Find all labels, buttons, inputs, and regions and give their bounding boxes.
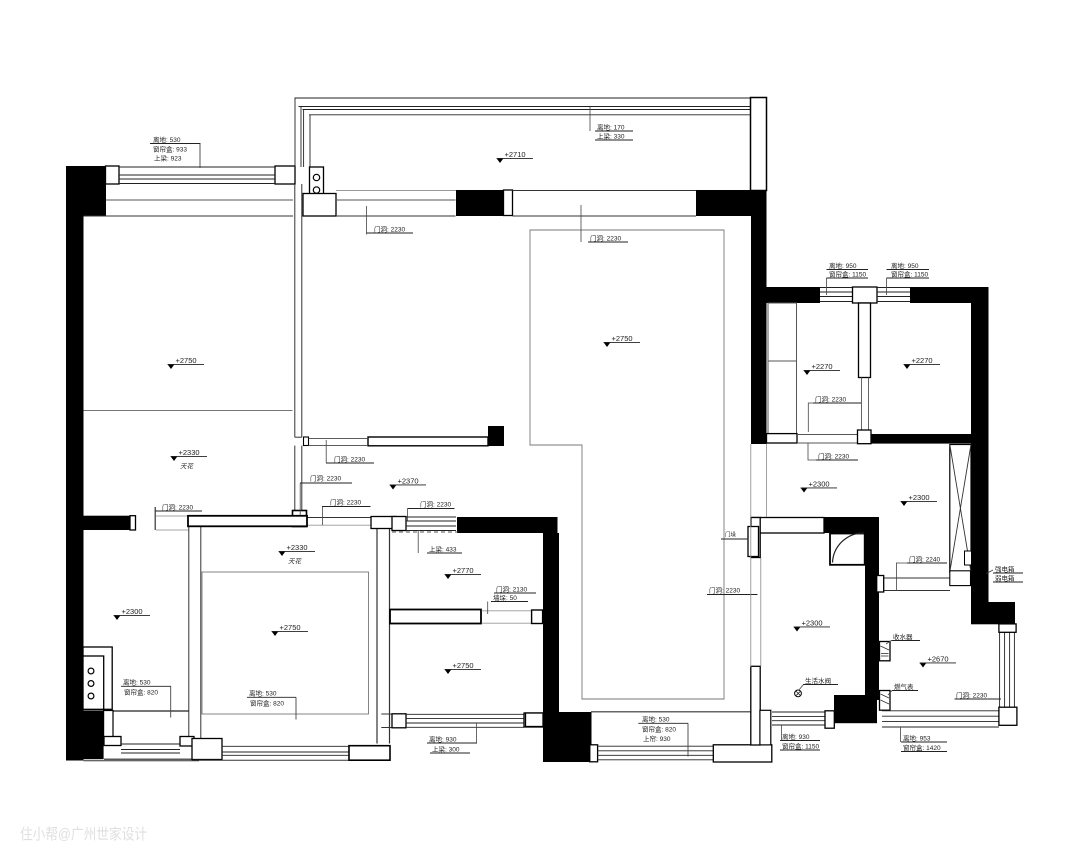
svg-text:门洞: 2230: 门洞: 2230 [709, 586, 740, 595]
svg-text:+2750: +2750 [280, 623, 301, 632]
svg-text:上梁: 433: 上梁: 433 [429, 545, 457, 554]
svg-text:离地: 950: 离地: 950 [829, 261, 857, 270]
svg-text:+2750: +2750 [612, 334, 633, 343]
svg-text:+2300: +2300 [802, 619, 823, 628]
svg-text:+2270: +2270 [812, 362, 833, 371]
svg-text:门洞: 2240: 门洞: 2240 [909, 555, 940, 564]
svg-text:住小帮@广州世家设计: 住小帮@广州世家设计 [20, 826, 147, 843]
svg-text:窗帘盒: 1150: 窗帘盒: 1150 [829, 270, 866, 279]
svg-text:离地: 930: 离地: 930 [782, 732, 810, 741]
svg-text:+2670: +2670 [928, 655, 949, 664]
svg-text:上梁: 923: 上梁: 923 [154, 154, 182, 163]
svg-text:离地: 953: 离地: 953 [903, 734, 931, 743]
svg-text:燃气表: 燃气表 [894, 682, 914, 691]
svg-text:离地: 530: 离地: 530 [249, 689, 277, 698]
svg-text:门洞: 2230: 门洞: 2230 [310, 474, 341, 483]
svg-text:+2750: +2750 [453, 661, 474, 670]
svg-text:弱电箱: 弱电箱 [995, 574, 1015, 583]
svg-text:上梁: 300: 上梁: 300 [432, 745, 460, 754]
svg-text:+2300: +2300 [909, 493, 930, 502]
svg-text:门垛: 门垛 [725, 531, 737, 539]
svg-text:强电箱: 强电箱 [995, 565, 1015, 574]
svg-text:离地: 530: 离地: 530 [153, 135, 181, 144]
svg-text:离地: 170: 离地: 170 [597, 123, 625, 132]
svg-text:+2330: +2330 [179, 448, 200, 457]
svg-text:上梁: 330: 上梁: 330 [597, 132, 625, 141]
svg-text:上帘: 930: 上帘: 930 [643, 734, 671, 743]
svg-text:+2270: +2270 [912, 356, 933, 365]
svg-text:离地: 950: 离地: 950 [891, 261, 919, 270]
svg-text:门洞: 2130: 门洞: 2130 [496, 585, 527, 594]
svg-text:门洞: 2230: 门洞: 2230 [818, 452, 849, 461]
svg-text:+2300: +2300 [122, 607, 143, 616]
svg-text:窗帘盒: 820: 窗帘盒: 820 [124, 688, 158, 697]
svg-text:窗帘盒: 1420: 窗帘盒: 1420 [903, 743, 941, 752]
svg-text:窗帘盒: 820: 窗帘盒: 820 [642, 724, 676, 733]
svg-text:窗帘盒: 933: 窗帘盒: 933 [153, 145, 187, 154]
svg-text:+2370: +2370 [398, 477, 419, 486]
svg-text:窗帘盒: 1150: 窗帘盒: 1150 [891, 270, 928, 279]
svg-text:门洞: 2230: 门洞: 2230 [334, 455, 365, 464]
svg-text:+2710: +2710 [505, 150, 526, 159]
svg-text:天花: 天花 [180, 463, 195, 471]
svg-text:门洞: 2230: 门洞: 2230 [956, 691, 987, 700]
svg-text:生活水阀: 生活水阀 [805, 676, 831, 685]
svg-text:+2750: +2750 [176, 356, 197, 365]
svg-text:窗帘盒: 820: 窗帘盒: 820 [250, 699, 284, 708]
svg-text:+2300: +2300 [809, 480, 830, 489]
svg-text:门洞: 2230: 门洞: 2230 [330, 498, 361, 507]
svg-text:墙垛: 50: 墙垛: 50 [493, 593, 517, 602]
svg-text:门洞: 2230: 门洞: 2230 [815, 395, 846, 404]
svg-text:门洞: 2230: 门洞: 2230 [374, 225, 405, 234]
svg-text:门洞: 2230: 门洞: 2230 [590, 234, 621, 243]
svg-text:+2770: +2770 [453, 566, 474, 575]
svg-text:门洞: 2230: 门洞: 2230 [162, 503, 193, 512]
svg-text:收水器: 收水器 [893, 632, 913, 641]
svg-text:离地: 530: 离地: 530 [123, 678, 151, 687]
svg-text:离地: 530: 离地: 530 [642, 715, 670, 724]
svg-text:天花: 天花 [288, 558, 303, 566]
svg-text:窗帘盒: 1150: 窗帘盒: 1150 [782, 742, 819, 751]
svg-text:门洞: 2230: 门洞: 2230 [420, 500, 451, 509]
svg-text:离地: 930: 离地: 930 [429, 735, 457, 744]
svg-text:+2330: +2330 [287, 543, 308, 552]
